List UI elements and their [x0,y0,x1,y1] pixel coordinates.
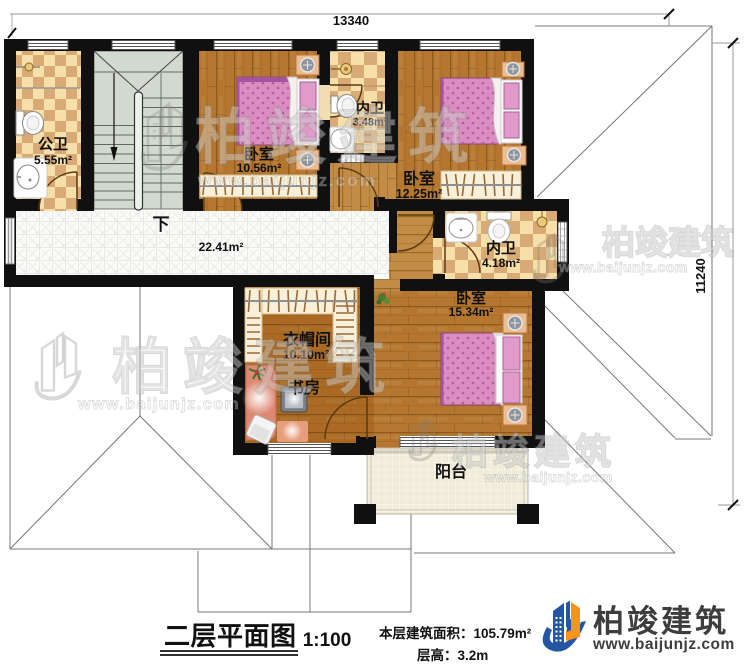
svg-text:www.baijunjz.com: www.baijunjz.com [483,469,613,485]
svg-text:www.baijunjz.com: www.baijunjz.com [558,259,688,275]
svg-text:下: 下 [153,215,170,234]
svg-text:www.baijunjz.com: www.baijunjz.com [77,396,240,413]
svg-text:22.41m²: 22.41m² [199,240,244,254]
svg-text:www.baijunjz.com: www.baijunjz.com [197,171,377,190]
svg-text:www.baijunjz.com: www.baijunjz.com [592,636,735,653]
svg-text:13340: 13340 [333,13,369,28]
svg-text:11240: 11240 [693,258,708,293]
svg-text:内卫: 内卫 [486,239,516,257]
svg-text:本层建筑面积：105.79m²: 本层建筑面积：105.79m² [379,625,532,641]
svg-text:公卫: 公卫 [38,136,68,153]
svg-text:柏竣建筑: 柏竣建筑 [593,604,729,639]
svg-text:4.18m²: 4.18m² [482,256,520,270]
svg-text:卧室: 卧室 [403,169,435,188]
svg-text:柏竣建筑: 柏竣建筑 [602,224,734,261]
svg-text:柏竣建筑: 柏竣建筑 [112,334,396,401]
svg-text:柏竣建筑: 柏竣建筑 [195,104,479,171]
svg-text:12.25m²: 12.25m² [396,187,443,201]
svg-text:15.34m²: 15.34m² [449,305,494,319]
svg-text:柏竣建筑: 柏竣建筑 [452,431,616,472]
svg-text:1:100: 1:100 [303,630,352,651]
svg-text:5.55m²: 5.55m² [34,153,72,167]
svg-text:二层平面图: 二层平面图 [164,621,297,651]
svg-text:层高：3.2m: 层高：3.2m [417,647,488,663]
